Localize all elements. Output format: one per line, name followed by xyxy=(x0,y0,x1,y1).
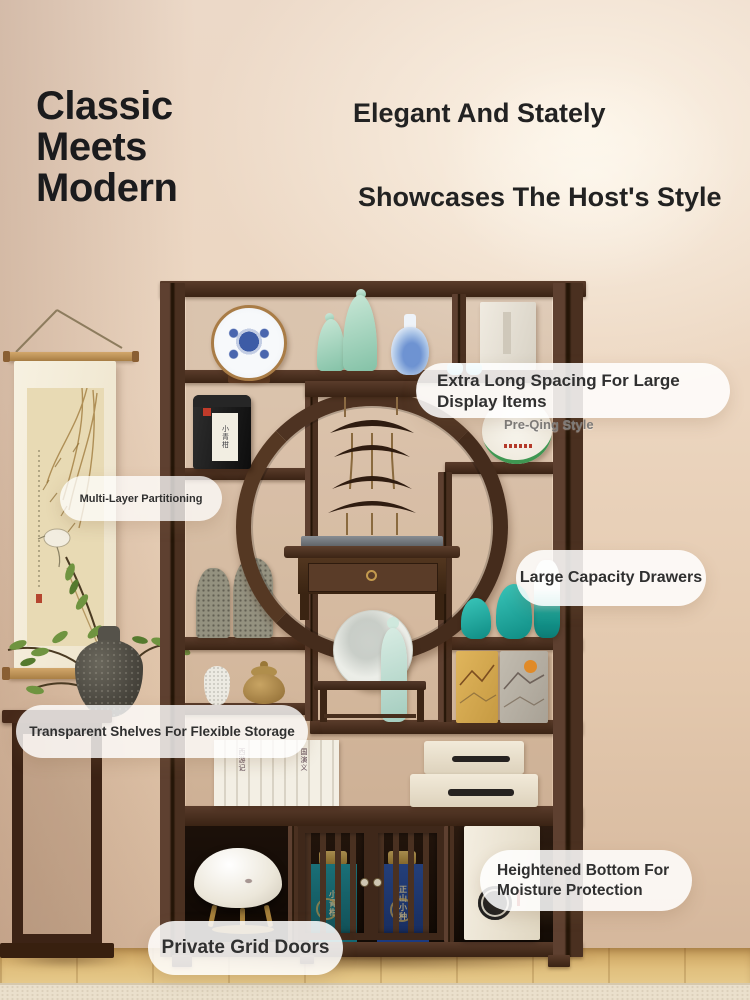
plant-stand-base xyxy=(0,943,114,958)
tea-caddy-lid xyxy=(193,395,251,407)
altar-leg xyxy=(435,594,444,620)
altar-table-top xyxy=(284,546,460,558)
shelf-beam xyxy=(163,637,313,650)
product-banner: 小青柑 西游记 国演义 小青柑 正山小种 xyxy=(0,0,750,1000)
blue-white-vase xyxy=(391,327,429,375)
blue-white-porcelain-plate xyxy=(211,305,287,381)
mountain-motif xyxy=(456,651,548,723)
tea-caddy-label-text: 小青柑 xyxy=(222,425,229,449)
speckled-white-vase xyxy=(204,666,230,705)
door-knob[interactable] xyxy=(373,878,382,887)
scroll-cord xyxy=(10,306,130,356)
altar-leg xyxy=(300,594,309,620)
callout-heightened-bottom: Heightened Bottom For Moisture Protectio… xyxy=(480,850,692,911)
book-spine-title: 国演义 xyxy=(300,748,307,772)
cabinet-top-beam xyxy=(163,806,583,826)
shelf-top-beam xyxy=(160,281,586,297)
bronze-censer xyxy=(243,674,285,704)
gift-box-label-strip xyxy=(503,312,511,354)
callout-private-grid-doors: Private Grid Doors xyxy=(148,921,343,975)
shelf-left-post xyxy=(160,283,185,957)
rug-strip xyxy=(0,983,750,1000)
callout-extra-long-spacing: Extra Long Spacing For Large Display Ite… xyxy=(416,363,730,418)
drawer-pull-ring xyxy=(366,570,377,581)
pagoda-model xyxy=(322,405,422,537)
slim-celadon-figurine xyxy=(381,628,407,722)
shelf-foot xyxy=(548,955,570,967)
table-stretcher xyxy=(324,714,416,718)
headline-line: Meets xyxy=(36,127,177,168)
box-handle-slot xyxy=(452,756,510,762)
headline-line: Classic xyxy=(36,86,177,127)
cabinet-divider xyxy=(444,826,454,942)
teal-jar xyxy=(461,598,491,639)
headline-line: Modern xyxy=(36,168,177,209)
red-seal-mark xyxy=(203,408,211,416)
rod-knob xyxy=(132,351,139,362)
scroll-top-rod xyxy=(8,352,134,361)
door-knob[interactable] xyxy=(360,878,369,887)
headline: Classic Meets Modern xyxy=(36,86,177,209)
rod-knob xyxy=(3,351,10,362)
callout-large-drawers: Large Capacity Drawers xyxy=(516,550,706,606)
stone-lion-statue xyxy=(196,568,230,638)
tagline-bottom: Showcases The Host's Style xyxy=(358,182,722,213)
table-leg xyxy=(417,690,424,722)
arch-top-beam xyxy=(305,381,417,397)
callout-multi-layer: Multi-Layer Partitioning xyxy=(60,476,222,521)
box-handle-slot xyxy=(448,789,514,796)
shelf-divider xyxy=(452,294,466,372)
tea-caddy-label: 小青柑 xyxy=(212,413,238,461)
photo-overlay-label: Pre-Qing Style xyxy=(504,417,594,432)
tagline-top: Elegant And Stately xyxy=(353,98,606,129)
mini-display-table xyxy=(314,681,426,690)
callout-transparent-shelves: Transparent Shelves For Flexible Storage xyxy=(16,705,308,758)
tea-cake-script xyxy=(504,444,532,448)
light-glow xyxy=(440,60,740,290)
